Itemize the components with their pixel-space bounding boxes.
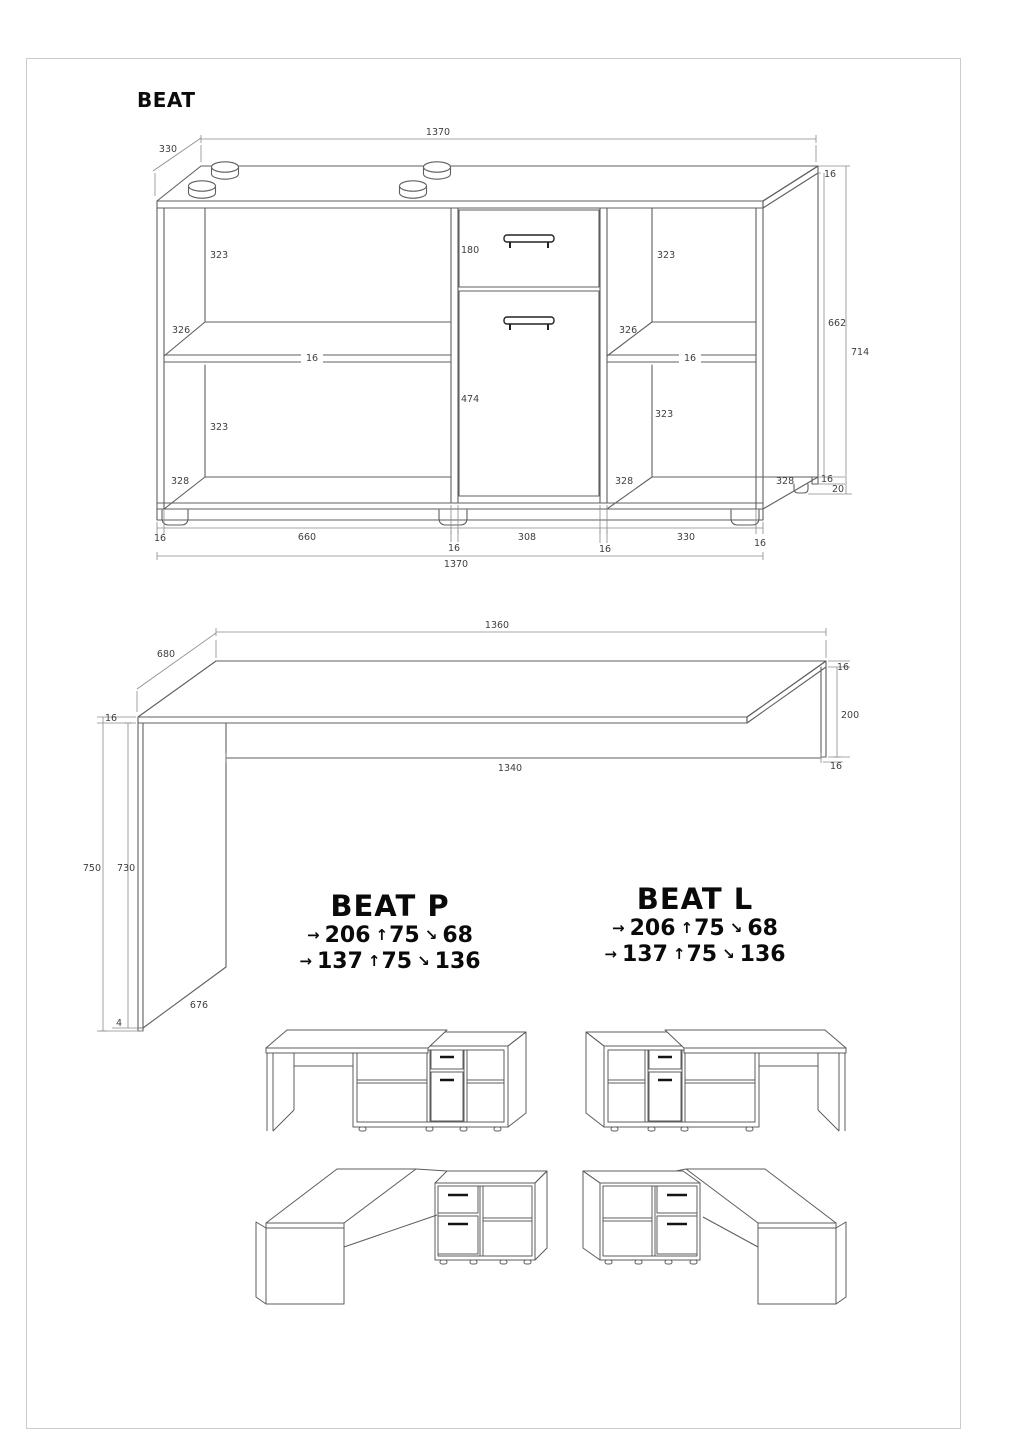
spec-sheet-page: { "sheet": { "title": "BEAT" }, "cabinet… (0, 0, 1024, 1449)
variant-beat-p-dims-inline: → 206 ↑75 ↘ 68 (275, 923, 505, 949)
dim-right-shelf-thickness: 16 (684, 353, 696, 364)
width-arrow-icon: → (604, 945, 617, 963)
page-title: BEAT (137, 88, 195, 112)
dim-desk-length-top: 1360 (485, 620, 509, 631)
dim-right-opening-bottom: 323 (655, 409, 673, 420)
variant-beat-l: BEAT L → 206 ↑75 ↘ 68 → 137 ↑75 ↘ 136 (580, 884, 810, 969)
thumb-beat-p-inline (266, 1030, 526, 1131)
width-arrow-icon: → (307, 926, 320, 944)
dim-value-height: 75 (694, 916, 725, 942)
dim-value-depth: 136 (435, 949, 481, 975)
dim-cabinet-side-height: 662 (828, 318, 846, 329)
dim-desk-length-under: 1340 (498, 763, 522, 774)
dim-value-depth: 68 (442, 923, 473, 949)
height-arrow-icon: ↑ (681, 919, 694, 937)
dim-feet-height: 20 (832, 484, 844, 495)
variant-beat-p-dims-corner: → 137 ↑75 ↘ 136 (275, 949, 505, 975)
configuration-thumbnails (240, 1015, 860, 1315)
thumb-beat-l-corner (583, 1169, 846, 1304)
dim-cabinet-width-top: 1370 (426, 127, 450, 138)
dim-drawer-height: 180 (461, 245, 479, 256)
dim-value-width: 137 (622, 942, 668, 968)
dim-cabinet-depth: 330 (159, 144, 177, 155)
dim-right-opening-top: 323 (657, 250, 675, 261)
dim-desk-depth: 680 (157, 649, 175, 660)
dim-desk-total-height: 750 (83, 863, 101, 874)
dim-cabinet-top-thickness: 16 (824, 169, 836, 180)
depth-arrow-icon: ↘ (417, 952, 430, 970)
dim-left-shelf-thickness: 16 (306, 353, 318, 364)
dim-bottom-opening-right: 330 (677, 532, 695, 543)
variant-beat-l-dims-corner: → 137 ↑75 ↘ 136 (580, 942, 810, 968)
dim-bottom-divider-left: 16 (448, 543, 460, 554)
dim-desk-top-thickness-left: 16 (105, 713, 117, 724)
dim-left-opening-bottom: 323 (210, 422, 228, 433)
width-arrow-icon: → (299, 952, 312, 970)
dim-desk-back-panel-bottom: 16 (830, 761, 842, 772)
dim-value-depth: 136 (740, 942, 786, 968)
dim-value-width: 137 (317, 949, 363, 975)
dim-side-bottom-depth: 328 (776, 476, 794, 487)
dim-bottom-divider-right: 16 (599, 544, 611, 555)
dim-left-bottom-depth: 328 (171, 476, 189, 487)
dim-cabinet-total-height: 714 (851, 347, 869, 358)
depth-arrow-icon: ↘ (425, 926, 438, 944)
dim-value-height: 75 (686, 942, 717, 968)
cabinet-technical-drawing: 1370 330 16 662 714 323 326 16 323 328 1… (85, 120, 875, 580)
dim-left-shelf-depth: 326 (172, 325, 190, 336)
dim-left-opening-top: 323 (210, 250, 228, 261)
variant-beat-l-dims-inline: → 206 ↑75 ↘ 68 (580, 916, 810, 942)
dim-value-depth: 68 (747, 916, 778, 942)
dim-right-shelf-depth: 326 (619, 325, 637, 336)
dim-bottom-side-left: 16 (154, 533, 166, 544)
dim-desk-glide-height: 4 (116, 1018, 122, 1029)
dim-desk-back-panel-height: 200 (841, 710, 859, 721)
width-arrow-icon: → (612, 919, 625, 937)
thumb-beat-p-corner (256, 1169, 547, 1304)
dim-value-width: 206 (630, 916, 676, 942)
dim-value-height: 75 (389, 923, 420, 949)
variant-beat-l-title: BEAT L (580, 884, 810, 916)
dim-cabinet-width-bottom: 1370 (444, 559, 468, 570)
dim-bottom-side-right: 16 (754, 538, 766, 549)
height-arrow-icon: ↑ (368, 952, 381, 970)
dim-bottom-middle: 308 (518, 532, 536, 543)
dim-desk-top-thickness-right: 16 (837, 662, 849, 673)
dim-desk-leg-height: 730 (117, 863, 135, 874)
height-arrow-icon: ↑ (376, 926, 389, 944)
depth-arrow-icon: ↘ (722, 945, 735, 963)
dim-value-height: 75 (381, 949, 412, 975)
thumb-beat-l-inline (586, 1030, 846, 1131)
dim-bottom-opening-left: 660 (298, 532, 316, 543)
variant-beat-p-title: BEAT P (275, 891, 505, 923)
depth-arrow-icon: ↘ (730, 919, 743, 937)
dim-desk-leg-depth: 676 (190, 1000, 208, 1011)
dim-door-height: 474 (461, 394, 479, 405)
height-arrow-icon: ↑ (673, 945, 686, 963)
dim-value-width: 206 (325, 923, 371, 949)
cabinet-structure (157, 162, 818, 525)
variant-beat-p: BEAT P → 206 ↑75 ↘ 68 → 137 ↑75 ↘ 136 (275, 891, 505, 976)
dim-right-bottom-depth: 328 (615, 476, 633, 487)
